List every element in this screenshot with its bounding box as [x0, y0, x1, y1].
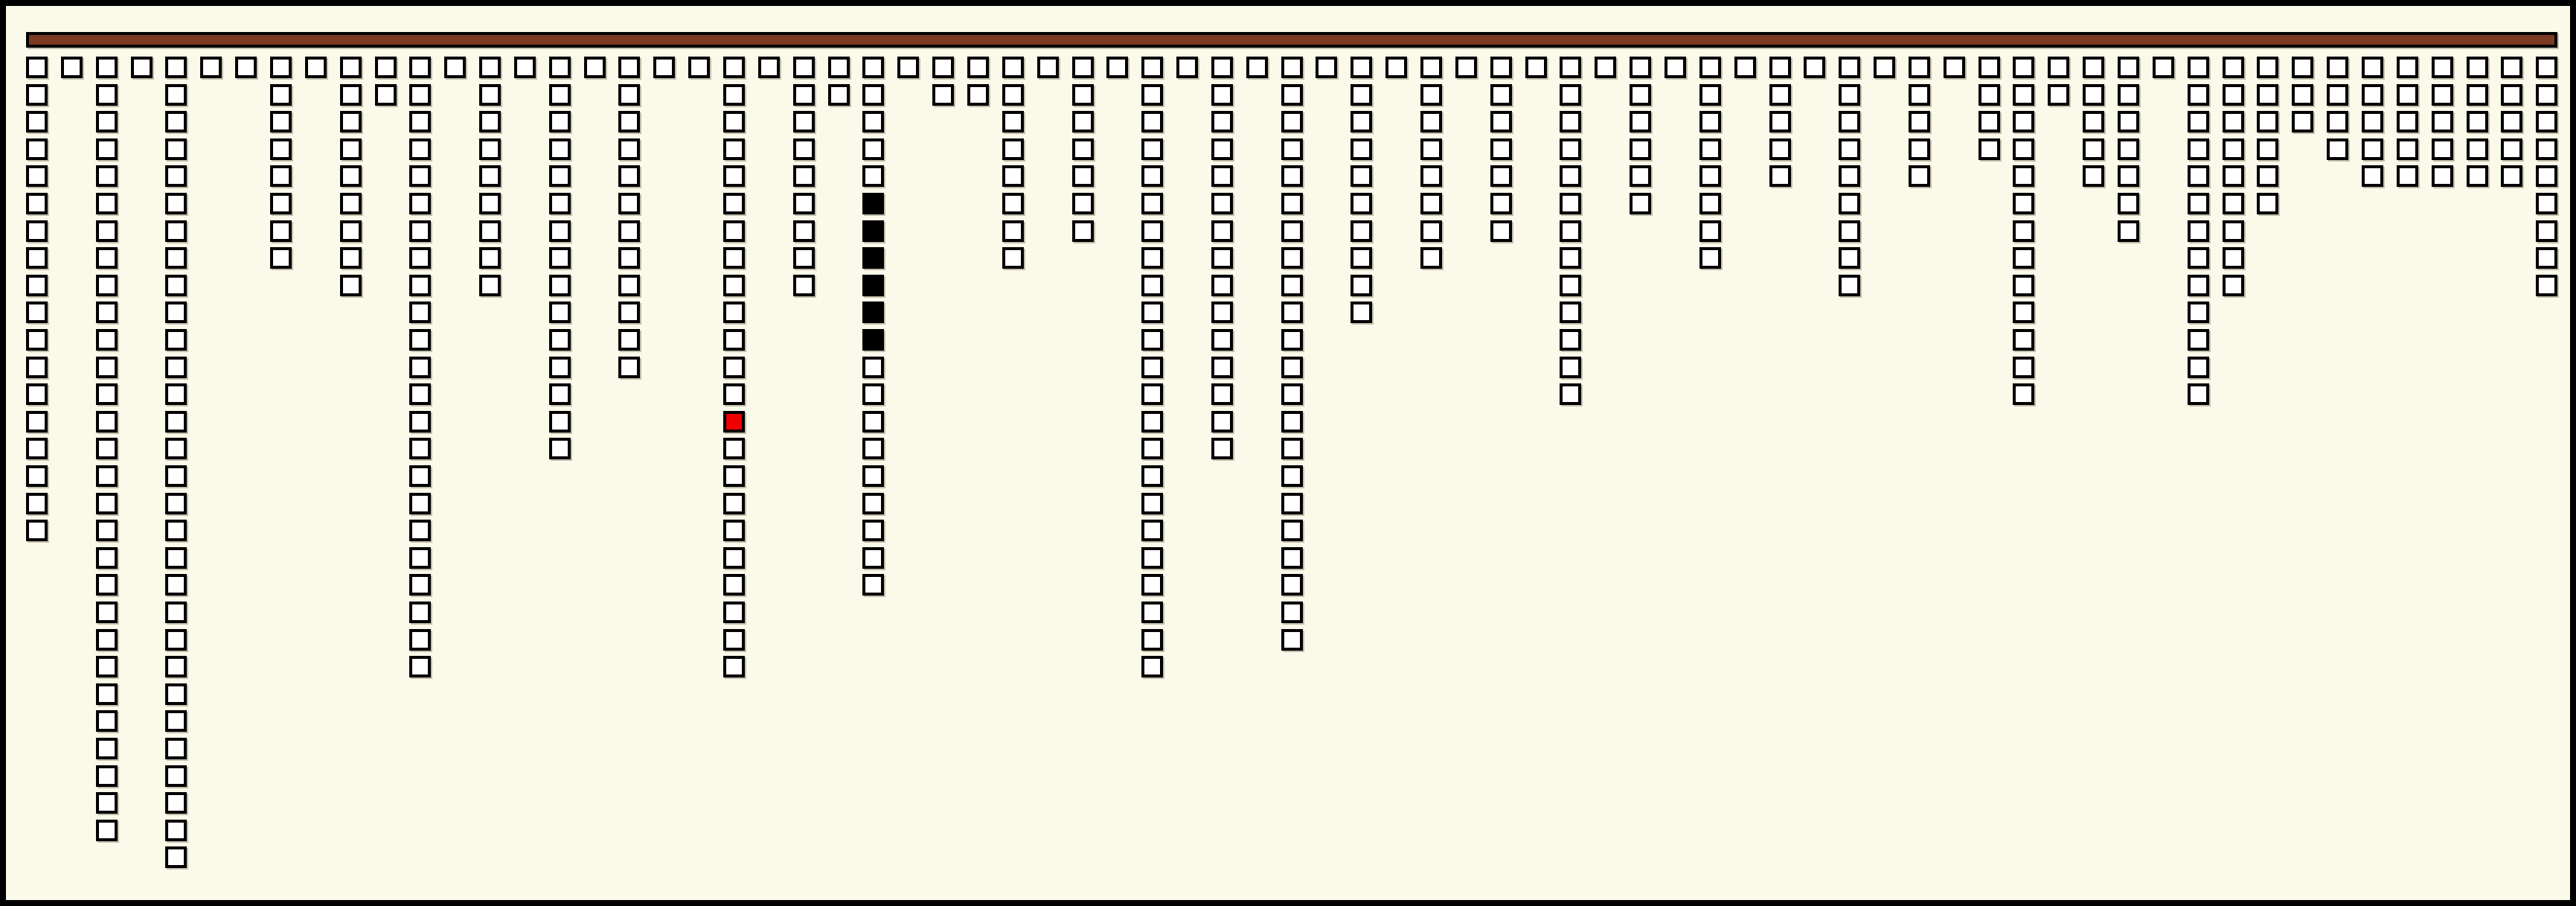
- cell: [2327, 111, 2348, 133]
- cell: [932, 57, 954, 78]
- cell: [2188, 383, 2209, 405]
- cell: [618, 111, 640, 133]
- cell: [26, 220, 48, 242]
- cell: [723, 247, 745, 269]
- cell: [2257, 84, 2278, 106]
- cell: [2013, 302, 2034, 323]
- cell: [2432, 165, 2453, 187]
- cell: [340, 220, 362, 242]
- cell: [549, 57, 571, 78]
- cell: [1281, 465, 1303, 487]
- cell: [1839, 57, 1860, 78]
- cell: [1141, 193, 1163, 214]
- cell: [270, 165, 292, 187]
- cell: [2188, 111, 2209, 133]
- cell: [479, 84, 501, 106]
- cell: [862, 57, 884, 78]
- cell: [270, 111, 292, 133]
- cell: [1141, 302, 1163, 323]
- black-cell: [862, 329, 884, 351]
- cell: [1699, 111, 1721, 133]
- cell: [340, 275, 362, 296]
- cell: [26, 193, 48, 214]
- cell: [1839, 275, 1860, 296]
- cell: [375, 57, 397, 78]
- cell: [2536, 275, 2557, 296]
- cell: [26, 520, 48, 541]
- cell: [165, 465, 187, 487]
- cell: [2223, 247, 2244, 269]
- cell: [1281, 247, 1303, 269]
- cell: [2048, 57, 2069, 78]
- cell: [2257, 193, 2278, 214]
- cell: [723, 493, 745, 514]
- cell: [2083, 111, 2104, 133]
- cell: [96, 111, 118, 133]
- cell: [479, 57, 501, 78]
- cell: [1002, 193, 1024, 214]
- cell: [723, 574, 745, 596]
- cell: [1351, 165, 1372, 187]
- cell: [723, 275, 745, 296]
- cell: [1281, 520, 1303, 541]
- cell: [26, 165, 48, 187]
- cell: [1420, 165, 1442, 187]
- cell: [131, 57, 153, 78]
- cell: [828, 57, 850, 78]
- cell: [897, 57, 919, 78]
- red-cell: [723, 411, 745, 433]
- cell: [2013, 220, 2034, 242]
- cell: [270, 84, 292, 106]
- black-cell: [862, 302, 884, 323]
- cell: [96, 710, 118, 732]
- cell: [340, 247, 362, 269]
- cell: [2013, 57, 2034, 78]
- cell: [1560, 357, 1581, 378]
- cell: [1211, 275, 1233, 296]
- cell: [200, 57, 222, 78]
- cell: [61, 57, 83, 78]
- cell: [1141, 629, 1163, 651]
- cell: [96, 765, 118, 787]
- cell: [165, 656, 187, 677]
- cell: [26, 465, 48, 487]
- cell: [2257, 57, 2278, 78]
- cell: [862, 84, 884, 106]
- cell: [1211, 111, 1233, 133]
- cell: [26, 411, 48, 433]
- cell: [1002, 84, 1024, 106]
- cell: [165, 165, 187, 187]
- cell: [1002, 111, 1024, 133]
- cell: [270, 138, 292, 160]
- cell: [1211, 193, 1233, 214]
- cell: [409, 111, 431, 133]
- cell: [1455, 57, 1477, 78]
- cell: [2188, 84, 2209, 106]
- cell: [1351, 57, 1372, 78]
- cell: [1072, 193, 1094, 214]
- cell: [1281, 193, 1303, 214]
- cell: [1734, 57, 1756, 78]
- cell: [1699, 57, 1721, 78]
- cell: [1560, 57, 1581, 78]
- cell: [793, 247, 815, 269]
- black-cell: [862, 247, 884, 269]
- cell: [1211, 357, 1233, 378]
- cell: [409, 602, 431, 623]
- cell: [1839, 84, 1860, 106]
- cell: [165, 493, 187, 514]
- cell: [165, 329, 187, 351]
- cell: [1420, 84, 1442, 106]
- cell: [165, 547, 187, 569]
- cell: [2257, 111, 2278, 133]
- cell: [618, 57, 640, 78]
- cell: [723, 438, 745, 459]
- cell: [2397, 165, 2418, 187]
- cell: [340, 193, 362, 214]
- cell: [1141, 329, 1163, 351]
- cell: [1420, 138, 1442, 160]
- cell: [1141, 138, 1163, 160]
- cell: [1072, 138, 1094, 160]
- cell: [723, 220, 745, 242]
- cell: [2536, 111, 2557, 133]
- cell: [1246, 57, 1268, 78]
- cell: [96, 438, 118, 459]
- cell: [165, 138, 187, 160]
- cell: [26, 57, 48, 78]
- cell: [26, 247, 48, 269]
- cell: [2223, 57, 2244, 78]
- cell: [409, 193, 431, 214]
- cell: [1072, 84, 1094, 106]
- cell: [1909, 138, 1930, 160]
- cell: [1979, 111, 2000, 133]
- cell: [2257, 138, 2278, 160]
- cell: [2118, 57, 2139, 78]
- cell: [1002, 138, 1024, 160]
- cell: [409, 629, 431, 651]
- cell: [1839, 111, 1860, 133]
- cell: [2188, 357, 2209, 378]
- cell: [2467, 57, 2488, 78]
- cell: [1630, 193, 1651, 214]
- cell: [862, 438, 884, 459]
- cell: [1769, 84, 1791, 106]
- cell: [409, 302, 431, 323]
- cell: [409, 84, 431, 106]
- cell: [549, 165, 571, 187]
- cell: [723, 465, 745, 487]
- cell: [26, 111, 48, 133]
- cell: [1630, 111, 1651, 133]
- cell: [479, 275, 501, 296]
- cell: [1560, 220, 1581, 242]
- cell: [2257, 165, 2278, 187]
- cell: [1630, 84, 1651, 106]
- cell: [549, 111, 571, 133]
- cell: [549, 84, 571, 106]
- cell: [2013, 111, 2034, 133]
- cell: [2362, 84, 2383, 106]
- cell: [1595, 57, 1616, 78]
- cell: [96, 683, 118, 705]
- cell: [1490, 57, 1512, 78]
- black-cell: [862, 220, 884, 242]
- cell: [96, 247, 118, 269]
- cell: [862, 357, 884, 378]
- cell: [793, 111, 815, 133]
- cell: [96, 820, 118, 841]
- cell: [618, 220, 640, 242]
- cell: [618, 193, 640, 214]
- cell: [1909, 165, 1930, 187]
- cell: [2153, 57, 2174, 78]
- cell: [1281, 438, 1303, 459]
- cell: [723, 193, 745, 214]
- cell: [409, 57, 431, 78]
- cell: [1909, 111, 1930, 133]
- cell: [1316, 57, 1337, 78]
- cell: [96, 357, 118, 378]
- cell: [409, 438, 431, 459]
- cell: [165, 438, 187, 459]
- cell: [828, 84, 850, 106]
- cell: [793, 138, 815, 160]
- cell: [444, 57, 466, 78]
- cell: [1560, 138, 1581, 160]
- cell: [305, 57, 327, 78]
- cell: [1699, 138, 1721, 160]
- cell: [1769, 165, 1791, 187]
- cell: [479, 220, 501, 242]
- cell: [793, 275, 815, 296]
- cell: [2118, 220, 2139, 242]
- cell: [1839, 193, 1860, 214]
- cell: [1141, 602, 1163, 623]
- cell: [1560, 193, 1581, 214]
- cell: [723, 656, 745, 677]
- cell: [96, 602, 118, 623]
- cell: [2432, 57, 2453, 78]
- cell: [1037, 57, 1059, 78]
- cell: [165, 193, 187, 214]
- cell: [479, 111, 501, 133]
- cell: [1874, 57, 1895, 78]
- cell: [1141, 57, 1163, 78]
- cell: [2188, 329, 2209, 351]
- cell: [165, 247, 187, 269]
- cell: [26, 383, 48, 405]
- cell: [2083, 165, 2104, 187]
- cell: [1211, 383, 1233, 405]
- cell: [2013, 383, 2034, 405]
- cell: [1211, 438, 1233, 459]
- cell: [409, 656, 431, 677]
- cell: [862, 138, 884, 160]
- cell: [1141, 220, 1163, 242]
- cell: [862, 383, 884, 405]
- cell: [2467, 138, 2488, 160]
- cell: [1141, 247, 1163, 269]
- cell: [1281, 602, 1303, 623]
- cell: [862, 574, 884, 596]
- cell: [1002, 57, 1024, 78]
- cell: [409, 411, 431, 433]
- cell: [2501, 57, 2522, 78]
- cell: [235, 57, 257, 78]
- cell: [2327, 138, 2348, 160]
- cell: [723, 302, 745, 323]
- cell: [1525, 57, 1547, 78]
- cell: [1420, 247, 1442, 269]
- cell: [723, 547, 745, 569]
- cell: [1420, 57, 1442, 78]
- cell: [340, 165, 362, 187]
- cell: [1560, 111, 1581, 133]
- cell: [1141, 275, 1163, 296]
- cell: [1281, 383, 1303, 405]
- cell: [1420, 220, 1442, 242]
- cell: [2013, 357, 2034, 378]
- cell: [653, 57, 675, 78]
- cell: [270, 247, 292, 269]
- cell: [1072, 165, 1094, 187]
- cell: [2327, 57, 2348, 78]
- cell: [862, 493, 884, 514]
- cell: [96, 574, 118, 596]
- cell: [723, 520, 745, 541]
- cell: [1699, 220, 1721, 242]
- cell: [1281, 357, 1303, 378]
- cell: [2223, 275, 2244, 296]
- cell: [2467, 84, 2488, 106]
- cell: [1141, 520, 1163, 541]
- cell: [165, 520, 187, 541]
- cell: [1141, 165, 1163, 187]
- cell: [1909, 57, 1930, 78]
- cell: [967, 84, 989, 106]
- cell: [1281, 329, 1303, 351]
- cell: [2223, 138, 2244, 160]
- cell: [862, 165, 884, 187]
- cell: [618, 247, 640, 269]
- cell: [862, 465, 884, 487]
- cell: [96, 383, 118, 405]
- cell: [165, 738, 187, 759]
- cell: [723, 602, 745, 623]
- cell: [1211, 220, 1233, 242]
- cell: [1141, 438, 1163, 459]
- cell: [1839, 220, 1860, 242]
- cell: [1560, 302, 1581, 323]
- cell: [1072, 57, 1094, 78]
- cell: [1072, 111, 1094, 133]
- cell: [1281, 84, 1303, 106]
- cell: [165, 383, 187, 405]
- cell: [723, 357, 745, 378]
- cell: [165, 820, 187, 841]
- cell: [549, 193, 571, 214]
- cell: [1944, 57, 1965, 78]
- cell: [2362, 165, 2383, 187]
- cell: [165, 683, 187, 705]
- cell: [2432, 111, 2453, 133]
- cell: [2188, 193, 2209, 214]
- cell: [723, 57, 745, 78]
- cell: [862, 411, 884, 433]
- board-frame: [0, 0, 2576, 906]
- cell: [1769, 57, 1791, 78]
- cell: [409, 547, 431, 569]
- cell: [409, 247, 431, 269]
- cell: [793, 84, 815, 106]
- cell: [409, 357, 431, 378]
- cell: [1141, 84, 1163, 106]
- cell: [165, 111, 187, 133]
- cell: [165, 846, 187, 868]
- cell: [409, 138, 431, 160]
- cell: [96, 84, 118, 106]
- cell: [2432, 138, 2453, 160]
- cell: [618, 165, 640, 187]
- cell: [340, 57, 362, 78]
- cell: [932, 84, 954, 106]
- cell: [1281, 629, 1303, 651]
- cell: [618, 84, 640, 106]
- cell: [793, 220, 815, 242]
- cell: [96, 329, 118, 351]
- cell: [1351, 247, 1372, 269]
- cell: [2223, 220, 2244, 242]
- cell: [2118, 111, 2139, 133]
- cell: [26, 138, 48, 160]
- cell: [2536, 138, 2557, 160]
- cell: [1351, 193, 1372, 214]
- cell: [2188, 220, 2209, 242]
- cell: [2501, 84, 2522, 106]
- cell: [723, 111, 745, 133]
- cell: [1141, 574, 1163, 596]
- cell: [2118, 84, 2139, 106]
- cell: [409, 574, 431, 596]
- cell: [2501, 111, 2522, 133]
- cell: [409, 520, 431, 541]
- cell: [549, 220, 571, 242]
- cell: [1141, 465, 1163, 487]
- black-cell: [862, 193, 884, 214]
- cell: [2188, 138, 2209, 160]
- cell: [270, 193, 292, 214]
- cell: [2223, 84, 2244, 106]
- cell: [26, 84, 48, 106]
- cell: [1839, 138, 1860, 160]
- cell: [862, 520, 884, 541]
- cell: [1281, 275, 1303, 296]
- cell: [1211, 57, 1233, 78]
- cell: [2467, 165, 2488, 187]
- cell: [409, 493, 431, 514]
- cell: [1281, 57, 1303, 78]
- cell: [1560, 383, 1581, 405]
- cell: [1490, 111, 1512, 133]
- cell: [96, 57, 118, 78]
- cell: [26, 493, 48, 514]
- cell: [2188, 165, 2209, 187]
